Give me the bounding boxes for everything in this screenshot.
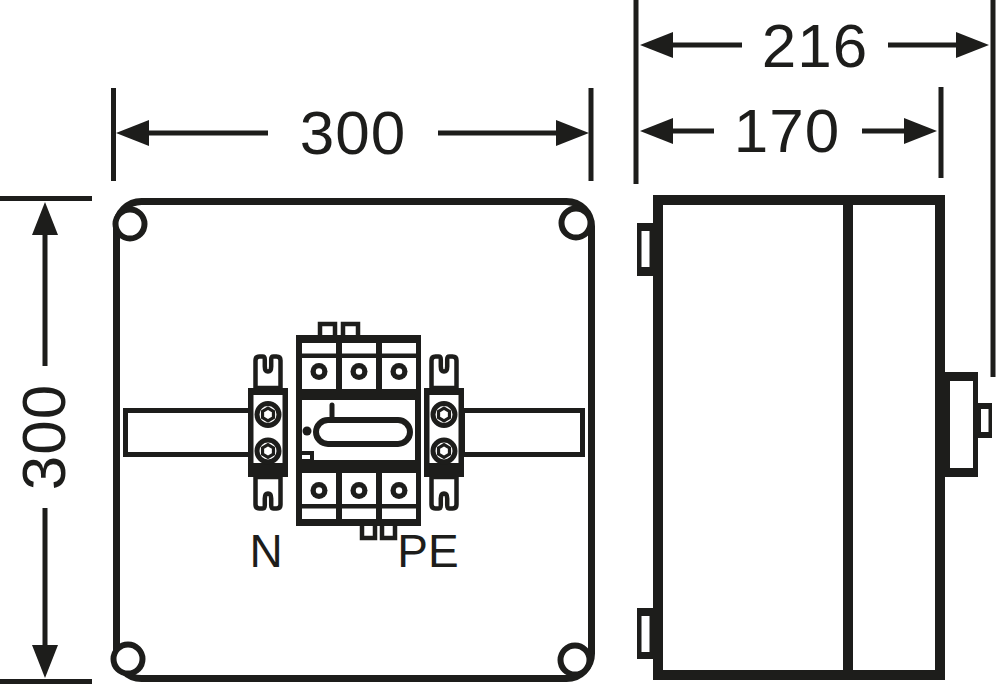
busbar-right — [463, 411, 583, 455]
enclosure-dimension-drawing: 300 300 216 170 N PE — [0, 0, 1000, 687]
pe-terminal-block — [424, 357, 464, 509]
mounting-hole-top-right — [562, 209, 591, 238]
hinge-slot-bottom — [642, 616, 650, 652]
switch-disconnector — [296, 324, 421, 538]
dimension-side-depth-total: 216 — [742, 15, 888, 77]
dimension-side-depth-body: 170 — [714, 100, 860, 162]
side-view — [637, 200, 992, 675]
mounting-hole-top-left — [116, 210, 145, 239]
mounting-hole-bottom-right — [561, 646, 590, 675]
front-view — [114, 202, 592, 679]
arrow-up-icon — [32, 202, 58, 235]
label-protective-earth: PE — [388, 528, 468, 574]
n-terminal-block — [248, 357, 288, 509]
arrow-right-icon — [956, 32, 989, 58]
arrow-left-icon — [640, 32, 673, 58]
mounting-hole-bottom-left — [114, 645, 143, 674]
switch-handle — [316, 420, 410, 444]
label-neutral: N — [236, 528, 296, 574]
hinge-slot-top — [642, 231, 650, 267]
arrow-left-icon — [640, 118, 673, 144]
arrow-down-icon — [32, 645, 58, 678]
handle-pivot-dot — [303, 427, 312, 436]
side-view-outline — [658, 200, 940, 675]
wall-bracket-inner — [950, 381, 973, 468]
busbar-left — [126, 411, 254, 455]
dimension-front-width: 300 — [283, 102, 423, 164]
wall-bracket-tab-slot — [981, 409, 989, 432]
arrow-right-icon — [904, 118, 937, 144]
dimension-front-height: 300 — [13, 367, 75, 507]
arrow-right-icon — [556, 120, 589, 146]
arrow-left-icon — [116, 120, 149, 146]
